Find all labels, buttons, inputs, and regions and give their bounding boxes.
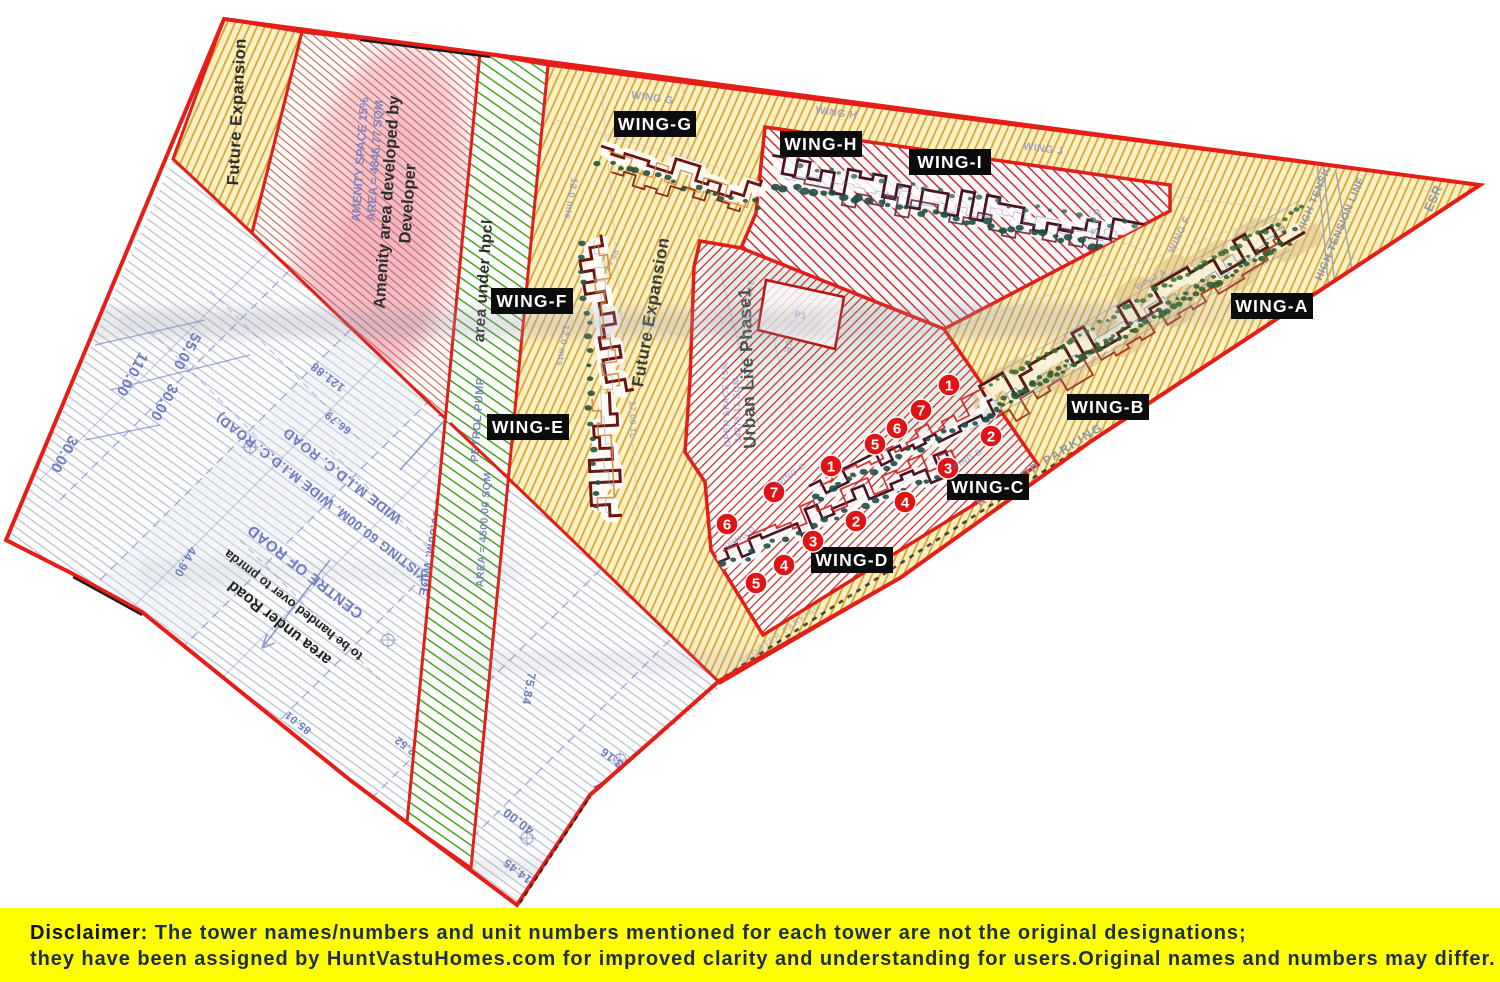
svg-text:7: 7 [917,403,925,420]
svg-text:WING-H: WING-H [784,134,857,154]
svg-text:WING-G: WING-G [618,114,692,134]
svg-text:2: 2 [852,514,860,531]
svg-text:WING-A: WING-A [1235,296,1308,316]
svg-text:WING-I: WING-I [917,152,983,172]
svg-text:5: 5 [871,437,879,454]
svg-text:WING-B: WING-B [1071,397,1144,417]
svg-text:4: 4 [901,495,910,512]
svg-text:5: 5 [752,576,760,593]
svg-text:2: 2 [987,429,995,446]
svg-text:30.37: 30.37 [591,777,628,810]
svg-text:1: 1 [827,459,835,476]
svg-text:6: 6 [893,421,901,438]
svg-text:6: 6 [723,517,731,534]
svg-text:WING-E: WING-E [492,417,564,437]
svg-text:4: 4 [780,558,789,575]
svg-text:WING-F: WING-F [496,291,567,311]
svg-text:1: 1 [945,378,953,395]
svg-text:WING-D: WING-D [815,550,888,570]
svg-text:WING-C: WING-C [951,477,1024,497]
svg-text:3: 3 [809,534,817,551]
